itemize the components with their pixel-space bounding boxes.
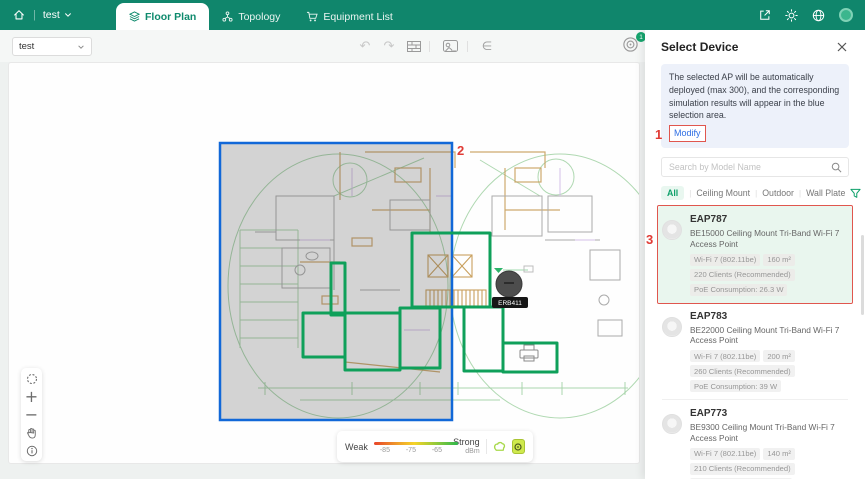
device-tag: Wi-Fi 7 (802.11be) xyxy=(690,448,760,460)
zoom-out-icon[interactable]: − xyxy=(24,407,39,422)
cable-icon[interactable]: ∈ xyxy=(478,37,496,55)
filter-separator: | xyxy=(689,189,691,198)
pan-hand-icon[interactable] xyxy=(24,425,39,440)
floor-select[interactable]: test xyxy=(12,37,92,56)
model-search xyxy=(661,157,849,177)
floor-plan-canvas[interactable]: ERB411 2 Weak -85 -75 -65 Strong dBm + − xyxy=(8,62,640,464)
filter-separator: | xyxy=(755,189,757,198)
tab-topology[interactable]: Topology xyxy=(209,3,293,30)
ap-product-icon xyxy=(662,220,682,240)
layers-icon xyxy=(129,11,140,22)
device-description: BE22000 Ceiling Mount Tri-Band Wi-Fi 7 A… xyxy=(690,325,846,347)
cart-icon xyxy=(306,11,318,22)
app-header: | test Floor Plan Topology Equipment Lis… xyxy=(0,0,865,30)
legend-unit: dBm xyxy=(465,448,479,455)
simulation-target-icon[interactable]: 1 xyxy=(622,36,644,56)
filter-wall-plate[interactable]: Wall Plate xyxy=(806,188,845,198)
device-name: EAP773 xyxy=(690,408,846,419)
chevron-down-icon xyxy=(64,11,72,19)
zoom-in-icon[interactable]: + xyxy=(24,389,39,404)
printer-symbol xyxy=(520,345,538,361)
signal-gradient: -85 -75 -65 xyxy=(374,437,447,457)
topology-icon xyxy=(222,11,233,22)
close-icon[interactable] xyxy=(835,40,849,54)
device-description: BE15000 Ceiling Mount Tri-Band Wi-Fi 7 A… xyxy=(690,228,846,250)
deployment-info-box: The selected AP will be automatically de… xyxy=(661,64,849,148)
device-tag: 140 m² xyxy=(763,448,795,460)
place-device-icon[interactable] xyxy=(441,37,459,55)
heatmap-toggle-icon[interactable] xyxy=(493,439,506,454)
wall-grid-icon[interactable] xyxy=(405,37,423,55)
home-icon[interactable] xyxy=(12,8,26,22)
device-list: 3 EAP787 BE15000 Ceiling Mount Tri-Band … xyxy=(658,206,852,479)
undo-icon[interactable]: ↶ xyxy=(356,37,374,55)
ap-marker[interactable]: ERB411 xyxy=(492,266,533,308)
info-icon[interactable] xyxy=(24,443,39,458)
project-switcher[interactable]: test xyxy=(43,9,72,21)
annotation-1: 1 xyxy=(655,126,662,145)
device-card-eap773[interactable]: EAP773 BE9300 Ceiling Mount Tri-Band Wi-… xyxy=(658,400,852,479)
device-name: EAP787 xyxy=(690,214,846,225)
ap-label: ERB411 xyxy=(498,300,522,307)
filter-all[interactable]: All xyxy=(661,186,684,200)
panel-scrollbar[interactable] xyxy=(861,235,864,315)
tab-equipment-list[interactable]: Equipment List xyxy=(293,3,405,30)
chevron-down-icon xyxy=(77,43,85,51)
tab-label: Floor Plan xyxy=(145,11,196,23)
device-tag: 200 m² xyxy=(763,350,795,362)
modify-link[interactable]: Modify xyxy=(669,125,706,142)
redo-icon[interactable]: ↷ xyxy=(380,37,398,55)
device-name: EAP783 xyxy=(690,311,846,322)
filter-outdoor[interactable]: Outdoor xyxy=(762,188,794,198)
annotation-2: 2 xyxy=(457,143,464,158)
map-tools: + − xyxy=(21,368,42,461)
device-tag: Wi-Fi 7 (802.11be) xyxy=(690,254,760,266)
filter-separator: | xyxy=(799,189,801,198)
canvas-toolbar: test ↶ ↷ ∈ 1 xyxy=(0,30,645,62)
device-card-eap783[interactable]: EAP783 BE22000 Ceiling Mount Tri-Band Wi… xyxy=(658,303,852,400)
device-tag: 260 Clients (Recommended) xyxy=(690,365,795,377)
device-description: BE9300 Ceiling Mount Tri-Band Wi-Fi 7 Ac… xyxy=(690,422,846,444)
user-avatar[interactable] xyxy=(839,8,853,22)
project-name: test xyxy=(43,9,60,21)
deployment-info-text: The selected AP will be automatically de… xyxy=(669,72,839,120)
tab-label: Topology xyxy=(238,11,280,23)
floor-plan-drawing: ERB411 xyxy=(9,63,639,463)
legend-tick: -85 xyxy=(380,447,390,454)
device-tag: 210 Clients (Recommended) xyxy=(690,463,795,475)
fit-view-icon[interactable] xyxy=(24,371,39,386)
device-filters: All | Ceiling Mount | Outdoor | Wall Pla… xyxy=(661,186,849,200)
share-icon[interactable] xyxy=(759,9,771,21)
main-tabs: Floor Plan Topology Equipment List xyxy=(116,0,406,30)
tab-label: Equipment List xyxy=(323,11,392,23)
floor-select-value: test xyxy=(19,41,34,52)
theme-icon[interactable] xyxy=(785,9,798,22)
device-card-eap787[interactable]: 3 EAP787 BE15000 Ceiling Mount Tri-Band … xyxy=(658,206,852,303)
toolbar-separator xyxy=(467,41,468,52)
signal-legend: Weak -85 -75 -65 Strong dBm xyxy=(337,431,533,462)
tab-floor-plan[interactable]: Floor Plan xyxy=(116,3,209,30)
filter-funnel-icon[interactable] xyxy=(850,188,861,199)
toolbar-separator xyxy=(429,41,430,52)
header-separator: | xyxy=(33,9,36,21)
device-view-toggle-icon[interactable] xyxy=(512,439,525,454)
legend-tick: -65 xyxy=(432,447,442,454)
selection-area[interactable] xyxy=(220,143,452,420)
annotation-3: 3 xyxy=(646,232,653,247)
search-input[interactable] xyxy=(662,158,848,176)
device-tag: Wi-Fi 7 (802.11be) xyxy=(690,350,760,362)
device-tag: 220 Clients (Recommended) xyxy=(690,269,795,281)
legend-separator xyxy=(486,439,487,454)
device-tag: PoE Consumption: 39 W xyxy=(690,380,781,392)
device-tag: PoE Consumption: 26.3 W xyxy=(690,284,787,296)
ap-product-icon xyxy=(662,317,682,337)
device-tag: 160 m² xyxy=(763,254,795,266)
select-device-panel: Select Device The selected AP will be au… xyxy=(645,30,865,479)
legend-weak-label: Weak xyxy=(345,442,368,452)
language-globe-icon[interactable] xyxy=(812,9,825,22)
ap-product-icon xyxy=(662,414,682,434)
panel-title: Select Device xyxy=(661,40,738,54)
search-icon[interactable] xyxy=(831,162,842,173)
legend-tick: -75 xyxy=(406,447,416,454)
filter-ceiling-mount[interactable]: Ceiling Mount xyxy=(696,188,750,198)
